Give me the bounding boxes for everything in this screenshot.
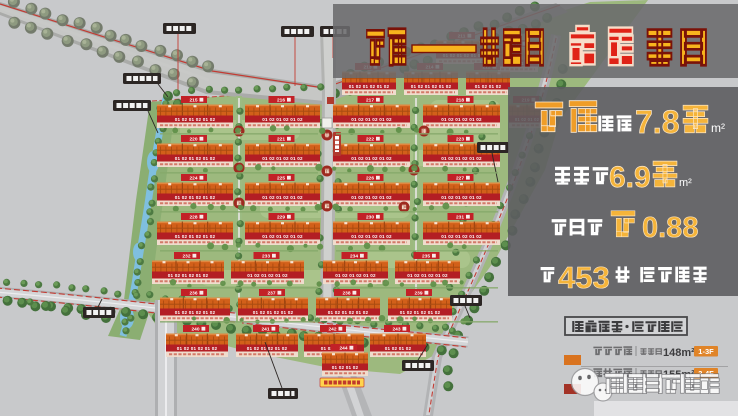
svg-text:238: 238 <box>342 291 350 297</box>
svg-text:01 02 01 02: 01 02 01 02 <box>475 84 502 89</box>
svg-text:01 02 01 02 01 02: 01 02 01 02 01 02 <box>411 84 452 89</box>
svg-text:01 02 01 02 01 02: 01 02 01 02 01 02 <box>349 84 390 89</box>
svg-text:225: 225 <box>277 176 285 182</box>
svg-text:01 02 01 02: 01 02 01 02 <box>332 365 359 370</box>
svg-text:236: 236 <box>189 291 197 297</box>
svg-text:216: 216 <box>277 98 285 104</box>
svg-text:01 02 01 02 01 02: 01 02 01 02 01 02 <box>253 310 294 315</box>
svg-text:220: 220 <box>189 137 197 143</box>
svg-text:233: 233 <box>262 254 270 260</box>
svg-text:242: 242 <box>328 327 336 333</box>
svg-text:234: 234 <box>350 254 358 260</box>
svg-text:453: 453 <box>558 260 610 295</box>
svg-text:01 02 01 02 01 02: 01 02 01 02 01 02 <box>168 273 209 278</box>
svg-text:m²: m² <box>711 121 725 135</box>
svg-text:01 02 01 02 01 02: 01 02 01 02 01 02 <box>175 117 216 122</box>
svg-text:239: 239 <box>414 291 422 297</box>
svg-text:228: 228 <box>189 215 197 221</box>
svg-text:230: 230 <box>366 215 374 221</box>
svg-text:6.9: 6.9 <box>609 161 651 194</box>
svg-text:01 02 01 02 01 02: 01 02 01 02 01 02 <box>407 273 448 278</box>
svg-text:01 02 01 02 01 02: 01 02 01 02 01 02 <box>175 156 216 161</box>
svg-text:01 02 01 02 01 02: 01 02 01 02 01 02 <box>262 156 303 161</box>
svg-text:218: 218 <box>456 98 464 104</box>
svg-text:01 02 01 02 01 02: 01 02 01 02 01 02 <box>441 195 482 200</box>
svg-text:217: 217 <box>366 98 374 104</box>
svg-text:01 02 01 02 01 02: 01 02 01 02 01 02 <box>262 195 303 200</box>
svg-text:01 02 01 02 01 02: 01 02 01 02 01 02 <box>351 234 392 239</box>
svg-text:221: 221 <box>277 137 285 143</box>
svg-text:01 02 01 02 01 02: 01 02 01 02 01 02 <box>441 117 482 122</box>
svg-text:243: 243 <box>392 327 400 333</box>
svg-text:148m²: 148m² <box>663 347 695 359</box>
svg-text:229: 229 <box>277 215 285 221</box>
svg-text:222: 222 <box>366 137 374 143</box>
svg-text:227: 227 <box>456 176 464 182</box>
svg-text:01 02 01 02 01 02: 01 02 01 02 01 02 <box>400 310 441 315</box>
svg-text:244: 244 <box>339 346 347 352</box>
svg-text:1-3F: 1-3F <box>698 347 714 356</box>
svg-text:01 02 01 02 01 02: 01 02 01 02 01 02 <box>175 234 216 239</box>
svg-text:241: 241 <box>261 327 269 333</box>
svg-text:215: 215 <box>189 98 197 104</box>
svg-text:01 02 01 02 01 02: 01 02 01 02 01 02 <box>335 273 376 278</box>
svg-text:231: 231 <box>456 215 464 221</box>
svg-text:223: 223 <box>456 137 464 143</box>
svg-text:01 02 01 02 01 02: 01 02 01 02 01 02 <box>351 195 392 200</box>
svg-text:226: 226 <box>366 176 374 182</box>
svg-text:01 02 01 02 01 02: 01 02 01 02 01 02 <box>351 156 392 161</box>
svg-text:0.88: 0.88 <box>642 212 698 244</box>
svg-text:01 02 01 02 01 02: 01 02 01 02 01 02 <box>441 234 482 239</box>
svg-text:01 02 01 02 01 02: 01 02 01 02 01 02 <box>262 234 303 239</box>
svg-text:237: 237 <box>267 291 275 297</box>
svg-text:01 02 01 02 01 02: 01 02 01 02 01 02 <box>351 117 392 122</box>
svg-text:235: 235 <box>422 254 430 260</box>
svg-text:01 02 01 02 01 02: 01 02 01 02 01 02 <box>328 310 369 315</box>
svg-text:240: 240 <box>191 327 199 333</box>
svg-text:01 02 01 02 01 02: 01 02 01 02 01 02 <box>262 117 303 122</box>
svg-text:01 02 01 02 01 02: 01 02 01 02 01 02 <box>177 346 218 351</box>
svg-text:224: 224 <box>189 176 197 182</box>
svg-text:01 02 01 02 01 02: 01 02 01 02 01 02 <box>441 156 482 161</box>
svg-text:m²: m² <box>679 177 692 189</box>
svg-text:01 02 01 02: 01 02 01 02 <box>385 346 412 351</box>
svg-text:7.8: 7.8 <box>635 104 679 140</box>
svg-text:01 02 01 02 01 02: 01 02 01 02 01 02 <box>175 195 216 200</box>
svg-text:232: 232 <box>182 254 190 260</box>
svg-text:01 02 01 02 01 02: 01 02 01 02 01 02 <box>175 310 216 315</box>
svg-text:01 02 01 02 01 02: 01 02 01 02 01 02 <box>247 273 288 278</box>
